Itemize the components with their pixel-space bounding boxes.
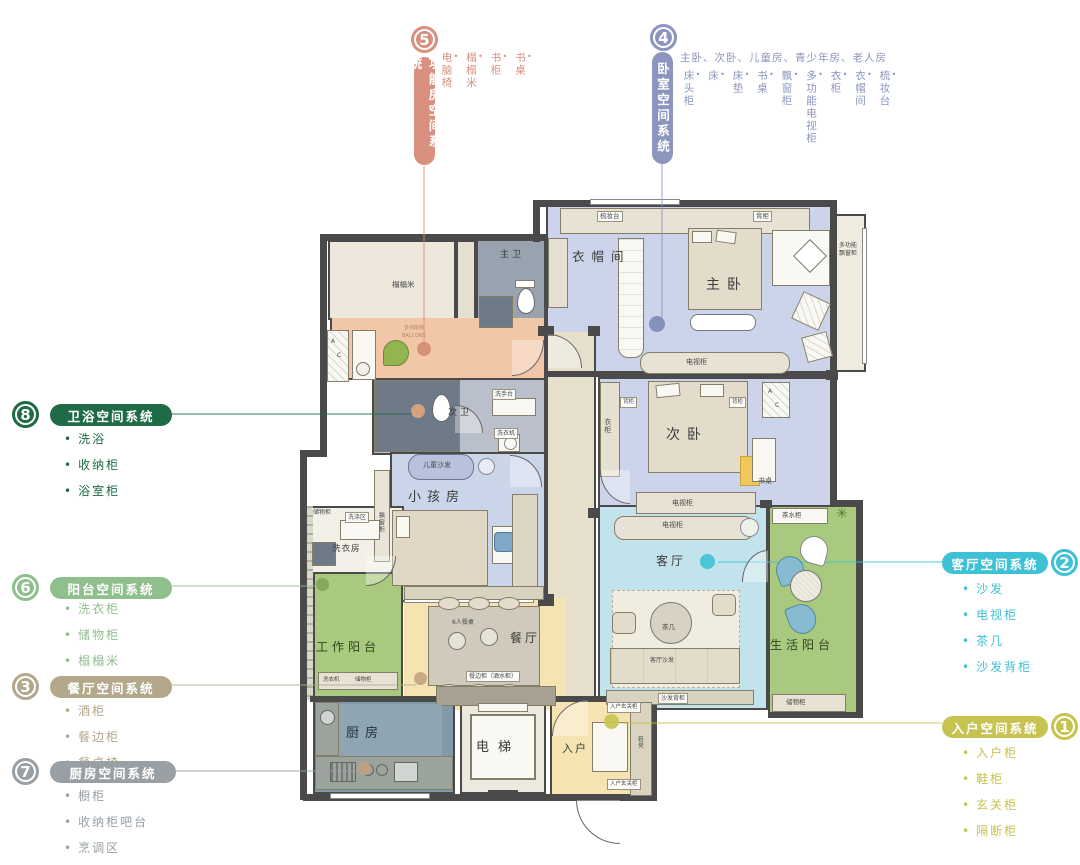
- callout-3-line: [172, 684, 416, 686]
- callout-dot-8: [411, 404, 425, 418]
- entry-rug: [592, 722, 628, 772]
- furniture-label: BALCONY: [402, 333, 426, 339]
- system-item: 储物柜: [64, 626, 120, 643]
- pillow: [396, 516, 410, 538]
- system-item: 隔断柜: [962, 822, 1018, 839]
- system-item: 玄关柜: [962, 796, 1018, 813]
- callout-4-note: 主卧、次卧、儿童房、青少年房、老人房: [680, 50, 887, 65]
- callout-8-number: 8: [12, 401, 39, 428]
- furniture-label: 沙发背柜: [658, 693, 688, 704]
- room-label-entry: 入户: [562, 740, 588, 756]
- furniture-label: 飘窗柜: [377, 512, 385, 533]
- callout-7-pill: 厨房空间系统: [50, 761, 176, 783]
- callout-7-number: 7: [12, 758, 39, 785]
- system-item: 衣帽间: [855, 70, 874, 108]
- system-item: 床: [708, 70, 727, 85]
- pillow: [715, 230, 736, 245]
- furniture-label: 梳妆台: [597, 211, 623, 222]
- furniture-label: 入户玄关柜: [607, 779, 641, 790]
- furniture-label: 茶水柜: [782, 511, 802, 519]
- system-item: 书柜: [490, 52, 509, 77]
- furniture-label: 储物柜: [786, 698, 806, 706]
- system-item: 收纳柜吧台: [64, 813, 148, 830]
- system-item: 洗浴: [64, 430, 120, 447]
- toilet: [517, 288, 535, 314]
- chair: [498, 597, 520, 610]
- callout-8-items: 洗浴收纳柜浴室柜: [64, 430, 120, 508]
- stove: [330, 762, 356, 782]
- callout-dot-5: [417, 342, 431, 356]
- system-item: 橱柜: [64, 787, 148, 804]
- plate: [480, 628, 498, 646]
- furniture-label: A: [768, 388, 772, 396]
- callout-7-items: 橱柜收纳柜吧台烹调区: [64, 787, 148, 865]
- furniture-label: 储物柜: [313, 509, 331, 517]
- callout-6-line: [172, 585, 318, 587]
- system-item: 多功能电视柜: [806, 70, 825, 145]
- chair: [494, 532, 514, 552]
- furniture-label: 储物柜: [355, 677, 372, 684]
- furniture-label: 背柜: [729, 397, 746, 408]
- wall-pillar: [826, 370, 838, 380]
- room-label-master-bedroom: 主卧: [706, 274, 748, 294]
- room-label-second-bedroom: 次卧: [666, 424, 708, 444]
- wall-segment: [320, 234, 327, 456]
- furniture-label: 书桌: [758, 477, 772, 486]
- furniture-label: C: [775, 402, 779, 410]
- furniture-label: 背柜: [620, 397, 637, 408]
- wall-pillar: [588, 326, 600, 336]
- shower: [479, 296, 513, 328]
- plant: [740, 518, 759, 537]
- chair: [468, 597, 490, 610]
- sofa: [610, 648, 740, 684]
- furniture-label: 洗手台: [492, 389, 516, 400]
- furniture-label: 电视柜: [662, 521, 683, 530]
- furniture-label: 电视柜: [686, 358, 707, 367]
- system-item: 鞋柜: [962, 770, 1018, 787]
- system-item: 飘窗柜: [781, 70, 800, 108]
- room-label-kitchen: 厨房: [346, 722, 384, 741]
- callout-3-number: 3: [12, 673, 39, 700]
- callout-2-pill: 客厅空间系统: [942, 552, 1048, 574]
- system-item: 入户柜: [962, 744, 1018, 761]
- tv-cabinet: [636, 492, 756, 514]
- system-item: 榻榻米: [466, 52, 485, 90]
- room-label-kids-room: 小孩房: [408, 486, 465, 505]
- furniture-label: 餐边柜（酒水柜）: [466, 671, 520, 682]
- system-item: 洗衣柜: [64, 600, 120, 617]
- system-item: 电脑椅: [441, 52, 460, 90]
- door-arc: [576, 800, 620, 844]
- callout-8-pill: 卫浴空间系统: [50, 404, 172, 426]
- sink: [320, 710, 335, 725]
- tv-cabinet: [614, 516, 754, 540]
- furniture-label: 洗涤区: [345, 512, 369, 523]
- wall-segment: [533, 200, 837, 207]
- room-label-dining: 餐厅: [510, 629, 540, 646]
- burner: [376, 764, 388, 776]
- room-label-master-bath: 主卫: [500, 247, 524, 260]
- callout-line-4: [661, 164, 663, 318]
- elevator-top: [478, 703, 528, 712]
- ceiling-fan: [478, 458, 495, 475]
- furniture-label: 衣柜: [603, 418, 612, 434]
- callout-dot-7: [358, 762, 371, 775]
- pillow: [700, 384, 724, 397]
- armchair: [612, 612, 636, 634]
- furniture-label: C: [337, 352, 341, 360]
- system-item: 床垫: [732, 70, 751, 95]
- system-item: 沙发背柜: [962, 658, 1032, 675]
- shelf: [512, 494, 538, 594]
- ac-closet: [762, 382, 790, 418]
- system-item: 梳妆台: [879, 70, 898, 108]
- desk: [752, 438, 776, 482]
- callout-dot-1: [604, 714, 619, 729]
- furniture-label: 洗衣机: [323, 677, 340, 684]
- tv-cabinet: [640, 352, 790, 374]
- callout-5-pill: 功能房空间系统: [414, 57, 435, 165]
- wall-segment: [856, 500, 863, 718]
- room-label-second-bath: 次卫: [448, 405, 472, 418]
- system-item: 衣柜: [830, 70, 849, 95]
- furniture-label: 入户玄关柜: [607, 702, 641, 713]
- room-label-life-balcony: 生活阳台: [770, 636, 834, 653]
- sink: [394, 762, 418, 782]
- furniture-label: 背柜: [753, 211, 772, 222]
- callout-line-1: [620, 722, 942, 724]
- plate: [448, 632, 466, 650]
- stool: [356, 362, 370, 376]
- pillow: [692, 231, 712, 243]
- wall-segment: [768, 712, 863, 718]
- wall-segment: [830, 372, 837, 506]
- wall-pillar: [760, 500, 772, 508]
- window: [590, 199, 680, 205]
- callout-line-5: [423, 166, 425, 346]
- chair: [383, 340, 409, 366]
- system-item: 书桌: [515, 52, 534, 77]
- callout-line-7: [176, 770, 360, 772]
- storage-cabinet: [772, 694, 846, 712]
- window: [862, 228, 867, 364]
- callout-6-pill: 阳台空间系统: [50, 577, 172, 599]
- callout-1-pill: 入户空间系统: [942, 716, 1048, 738]
- callout-3-pill: 餐厅空间系统: [50, 676, 172, 698]
- wall-pillar: [588, 508, 600, 518]
- system-item: 浴室柜: [64, 482, 120, 499]
- furniture-label: 鞋凳: [636, 736, 643, 749]
- bench: [690, 314, 756, 331]
- furniture-label: 电视柜: [672, 499, 693, 508]
- system-item: 烹调区: [64, 839, 148, 856]
- cloak-cabinet: [548, 238, 568, 308]
- system-item: 床头柜: [683, 70, 702, 108]
- room-label-living: 客厅: [656, 552, 686, 569]
- system-item: 茶几: [962, 632, 1032, 649]
- wall-segment: [323, 234, 547, 241]
- callout-2-number: 2: [1051, 549, 1078, 576]
- table: [790, 570, 822, 602]
- callout-dot-2: [700, 554, 715, 569]
- furniture-label: 茶几: [662, 623, 675, 631]
- toilet-tank: [515, 280, 535, 288]
- system-item: 酒柜: [64, 702, 120, 719]
- furniture-label: 多功能飘窗柜: [839, 242, 859, 257]
- callout-4-pill: 卧室空间系统: [652, 52, 673, 164]
- furniture-label: 客厅沙发: [650, 657, 674, 665]
- system-item: 电视柜: [962, 606, 1032, 623]
- pillow: [655, 383, 680, 398]
- room-label-cloakroom: 衣帽间: [572, 246, 631, 265]
- window: [330, 793, 430, 799]
- elevator-door: [488, 790, 518, 793]
- callout-1-items: 入户柜鞋柜玄关柜隔断柜: [962, 744, 1018, 848]
- callout-8-line: [172, 413, 412, 415]
- furniture-label: 6人餐桌: [452, 619, 474, 627]
- system-item: 收纳柜: [64, 456, 120, 473]
- furniture-label: A: [331, 338, 335, 346]
- callout-4-number: 4: [650, 24, 677, 51]
- callout-5-number: 5: [411, 26, 438, 53]
- system-item: 榻榻米: [64, 652, 120, 669]
- chair: [438, 597, 460, 610]
- system-item: 餐边柜: [64, 728, 120, 745]
- washbasin: [492, 398, 536, 416]
- plant-icon: ✳: [836, 506, 848, 522]
- callout-1-number: 1: [1051, 713, 1078, 740]
- callout-6-number: 6: [12, 574, 39, 601]
- callout-4-items: 床头柜床床垫书桌飘窗柜多功能电视柜衣柜衣帽间梳妆台: [680, 70, 1069, 145]
- callout-dot-4: [649, 316, 665, 332]
- callout-2-items: 沙发电视柜茶几沙发背柜: [962, 580, 1032, 684]
- room-label-laundry: 洗衣房: [332, 542, 361, 554]
- furniture-label: 儿童沙发: [423, 461, 451, 470]
- system-item: 沙发: [962, 580, 1032, 597]
- system-item: 书桌: [757, 70, 776, 95]
- furniture-label: 洗衣机: [494, 428, 518, 439]
- wall-segment: [300, 450, 307, 800]
- armchair: [712, 594, 736, 616]
- callout-5-items: 电脑椅榻榻米书柜书桌: [438, 52, 599, 90]
- furniture-label: 多功能房: [404, 325, 424, 331]
- room-label-elevator: 电梯: [476, 736, 520, 755]
- room-label-work-balcony: 工作阳台: [316, 638, 380, 655]
- sink: [340, 520, 380, 540]
- furniture-label: 榻榻米: [392, 280, 415, 289]
